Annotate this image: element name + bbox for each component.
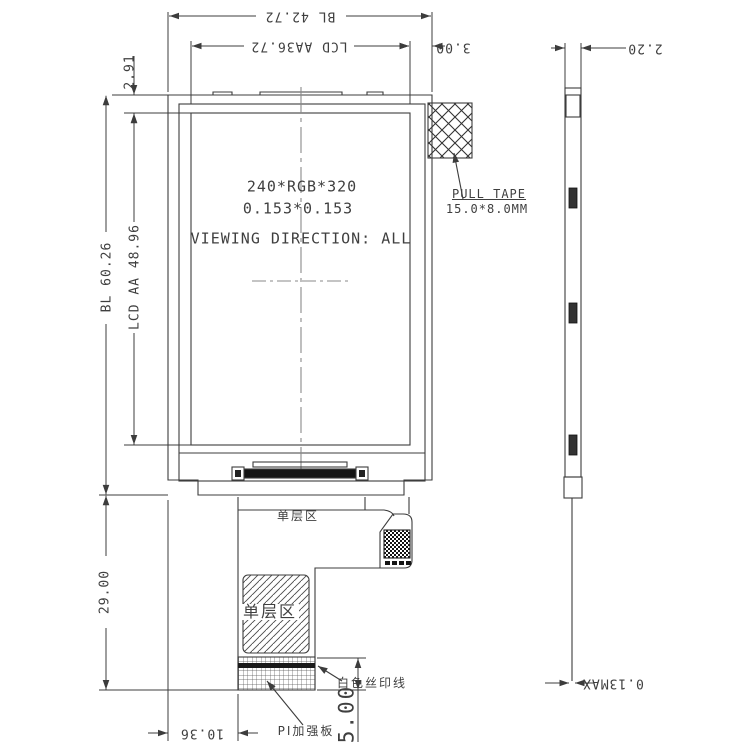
label-pull-tape: PULL TAPE: [452, 188, 526, 200]
panel-outline: [179, 104, 425, 481]
pull-tape: [428, 103, 472, 199]
label-resolution: 240*RGB*320: [247, 180, 357, 195]
silkscreen-line-mark: [238, 663, 315, 668]
side-tape-1: [569, 188, 577, 208]
side-top-block: [566, 95, 580, 117]
dim-bl-width: BL 42.72: [265, 10, 336, 23]
flap-component: [384, 530, 410, 558]
label-single-layer-upper: 单层区: [277, 510, 319, 522]
dim-fpc-thickness: 0.13MAX: [582, 677, 644, 690]
front-view: [168, 87, 432, 495]
dim-top-margin: 2.91: [124, 54, 137, 89]
dimension-lines: [99, 12, 626, 742]
side-bottom-block: [564, 477, 582, 498]
side-tape-2: [569, 303, 577, 323]
side-tape-3: [569, 435, 577, 455]
dim-fpc-length: 29.00: [99, 570, 112, 614]
side-body: [565, 88, 581, 477]
connector-slot: [253, 462, 347, 467]
label-pi-stiffener: PI加强板: [278, 725, 335, 737]
dim-bl-height: BL 60.26: [101, 242, 114, 313]
lcd-module-drawing-page: BL 42.72 LCD AA36.72 3.00 2.20 2.91 BL 6…: [0, 0, 750, 750]
label-pixel-pitch: 0.153*0.153: [243, 202, 353, 217]
label-single-layer-lower: 单层区: [241, 604, 299, 620]
cog-bar: [243, 469, 360, 478]
dim-aa-width: LCD AA36.72: [250, 40, 347, 53]
label-viewing-direction: VIEWING DIRECTION: ALL: [191, 232, 412, 247]
pull-tape-area: [428, 103, 472, 158]
dim-thickness: 2.20: [627, 42, 662, 55]
label-white-silkscreen: 白色丝印线: [337, 677, 407, 689]
dim-aa-height: LCD AA 48.96: [129, 224, 142, 330]
dim-side-margin: 3.00: [435, 41, 470, 54]
bl-outline: [168, 95, 432, 495]
pi-stiffener-area: [238, 657, 315, 690]
drawing-canvas: [0, 0, 750, 750]
dim-pi-height: 5.00: [337, 685, 358, 744]
side-view: [564, 88, 582, 681]
dim-tail-offset: 10.36: [180, 727, 224, 740]
label-pull-tape-size: 15.0*8.0MM: [446, 203, 528, 215]
